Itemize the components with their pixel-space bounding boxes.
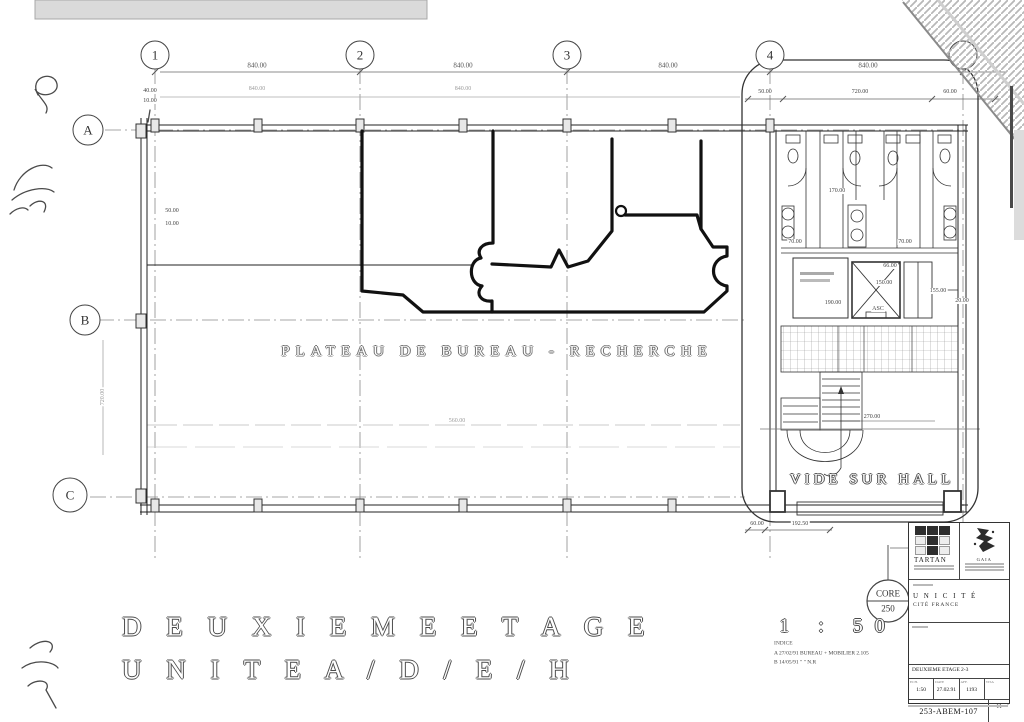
grid-col-3: 3 (564, 49, 571, 62)
dim-top-4: 840.00 (857, 63, 878, 70)
room-label-plateau: PLATEAU DE BUREAU - RECHERCHE (281, 345, 713, 360)
dim-core-top-2: 720.00 (851, 89, 870, 95)
meta-visa-label: VISA (986, 680, 1008, 684)
revision-row-b: B 14/05/91 " " N.R (774, 660, 816, 666)
scan-artifacts (35, 0, 1024, 240)
floor-title-line1: D E U X I E M E E T A G E (122, 614, 654, 641)
dim-top2-1: 840.00 (248, 86, 267, 92)
dimension-lines (103, 69, 1005, 533)
core-bubble-top-text: CORE (876, 590, 900, 599)
grid-row-c: C (66, 489, 75, 502)
grid-row-a: A (83, 124, 92, 137)
meta-visa: VISA (985, 679, 1009, 699)
titleblock-footer-line (908, 705, 1008, 707)
tartan-logo (915, 526, 957, 555)
dim-core-top-1: 50.00 (757, 89, 773, 95)
meta-scale-label: ECH. (910, 680, 932, 684)
project-location: CITÉ FRANCE (913, 602, 1005, 608)
core-bubble-bottom-text: 250 (881, 605, 895, 614)
dim-bottom-2: 192.50 (791, 521, 810, 527)
titleblock-number-row: 253-ABEM-107 11 (909, 700, 1009, 722)
partner-name: GAIA (962, 557, 1008, 562)
dim-col1-a: 40.00 (142, 88, 158, 94)
column-piers (136, 119, 961, 512)
dim-left-vertical: 720.00 (100, 388, 106, 407)
dim-elev-b: 150.00 (875, 280, 894, 286)
meta-date-value: 27.02.91 (935, 687, 957, 693)
titleblock-notes (909, 626, 1009, 665)
dim-toilet-3: 70.00 (897, 239, 913, 245)
floor-title-line2: U N I T E A / D / E / H (122, 657, 578, 684)
dim-left-b: 10.00 (164, 221, 180, 227)
dim-left-a: 50.00 (164, 208, 180, 214)
dim-top2-2: 840.00 (454, 86, 473, 92)
dim-col1-b: 10.00 (142, 98, 158, 104)
titleblock-meta-row: ECH. 1:50 DATE 27.02.91 AFF. 1193 VISA (909, 679, 1009, 700)
tartan-logo-cell: TARTAN (909, 523, 960, 579)
scale-text: 1 : 50 (779, 616, 897, 636)
sheet-number: 11 (989, 700, 1009, 722)
dim-core-top-3: 60.00 (942, 89, 958, 95)
partner-logo (969, 526, 999, 556)
dim-bottom-1: 60.00 (749, 521, 765, 527)
meta-job-value: 1193 (961, 687, 983, 693)
grid-bubbles (53, 41, 977, 512)
dim-top-3: 840.00 (657, 63, 678, 70)
tartan-name: TARTAN (914, 556, 957, 564)
revision-heading: INDICE (774, 641, 793, 647)
meta-scale-value: 1:50 (910, 687, 932, 693)
meta-date: DATE 27.02.91 (934, 679, 959, 699)
dim-top-2: 840.00 (452, 63, 473, 70)
hall-label: VIDE SUR HALL (790, 473, 955, 488)
titleblock-project: U N I C I T É CITÉ FRANCE (909, 580, 1009, 623)
dim-stair: 270.00 (863, 414, 882, 420)
project-name: U N I C I T É (913, 592, 1005, 600)
dim-elev-e: 20.00 (954, 298, 970, 304)
grid-col-2: 2 (357, 49, 364, 62)
grid-col-4: 4 (767, 49, 774, 62)
hall-floor-hatch (781, 326, 958, 372)
drawing-sheet: 1 2 3 4 A B C 840.00 840.00 840.00 840.0… (0, 0, 1024, 722)
outer-walls (140, 118, 968, 515)
grid-col-1: 1 (152, 49, 159, 62)
dim-elev-c: 190.00 (824, 300, 843, 306)
meta-job: AFF. 1193 (960, 679, 985, 699)
dim-toilet-2: 70.00 (787, 239, 803, 245)
toilet-block (781, 131, 958, 253)
grid-row-b: B (81, 314, 90, 327)
revision-row-a: A 27/02/91 BUREAU + MOBILIER 2.105 (774, 651, 869, 657)
dim-elev-d: 155.00 (929, 288, 948, 294)
dim-interior: 560.00 (448, 418, 467, 424)
dim-toilet-1: 170.00 (828, 188, 847, 194)
title-block: TARTAN GAIA U N I C I T É CITÉ FRANCE DE… (908, 522, 1010, 704)
meta-job-label: AFF. (961, 680, 983, 684)
elevator-asc-label: ASC (871, 306, 885, 312)
titleblock-drawing-title: DEUXIEME ETAGE 2-3 (909, 665, 1009, 679)
titleblock-logos-row: TARTAN GAIA (909, 523, 1009, 580)
dim-top-1: 840.00 (246, 63, 267, 70)
bold-interior-outline (362, 131, 727, 312)
grid-centerlines (90, 68, 965, 562)
dim-elev-a: 66.00 (882, 263, 898, 269)
meta-scale: ECH. 1:50 (909, 679, 934, 699)
meta-date-label: DATE (935, 680, 957, 684)
drawing-number: 253-ABEM-107 (909, 700, 989, 722)
partner-logo-cell: GAIA (960, 523, 1010, 579)
